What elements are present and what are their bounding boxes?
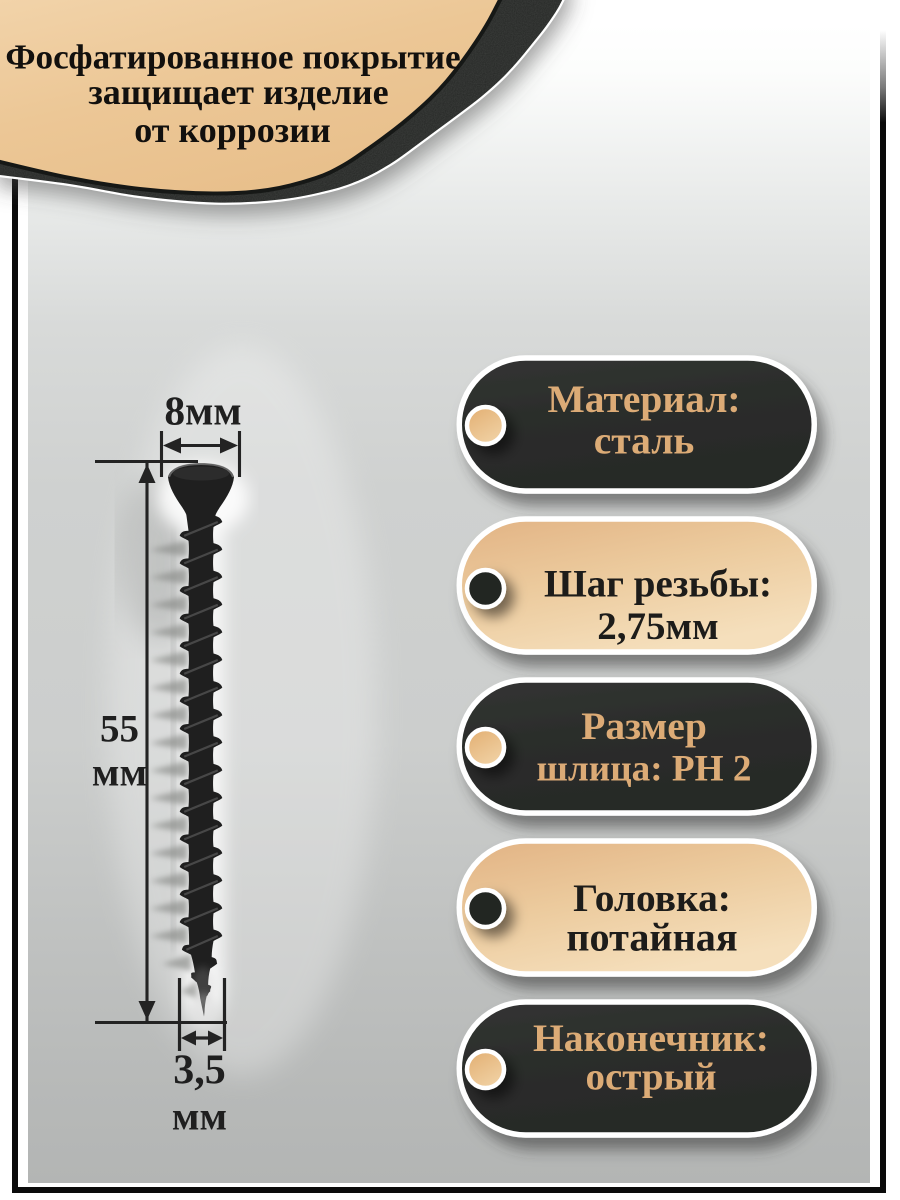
svg-text:8мм: 8мм [164,388,241,434]
svg-text:Наконечник:: Наконечник: [533,1016,769,1060]
svg-text:Размер: Размер [581,704,707,748]
svg-text:55: 55 [100,707,139,750]
svg-text:Фосфатированное покрытие: Фосфатированное покрытие [5,38,460,77]
svg-text:защищает изделие: защищает изделие [88,72,388,112]
svg-text:Материал:: Материал: [547,377,740,421]
svg-text:сталь: сталь [594,419,695,463]
svg-text:шлица: PH 2: шлица: PH 2 [537,749,752,790]
svg-text:мм: мм [92,749,147,794]
svg-text:Головка:: Головка: [573,876,731,920]
svg-text:острый: острый [585,1056,716,1099]
svg-text:мм: мм [172,1094,227,1139]
svg-text:3,5: 3,5 [173,1047,226,1093]
svg-text:потайная: потайная [566,915,737,960]
svg-text:2,75мм: 2,75мм [597,605,718,648]
svg-text:от коррозии: от коррозии [134,110,330,150]
svg-text:Шаг резьбы:: Шаг резьбы: [544,563,772,606]
